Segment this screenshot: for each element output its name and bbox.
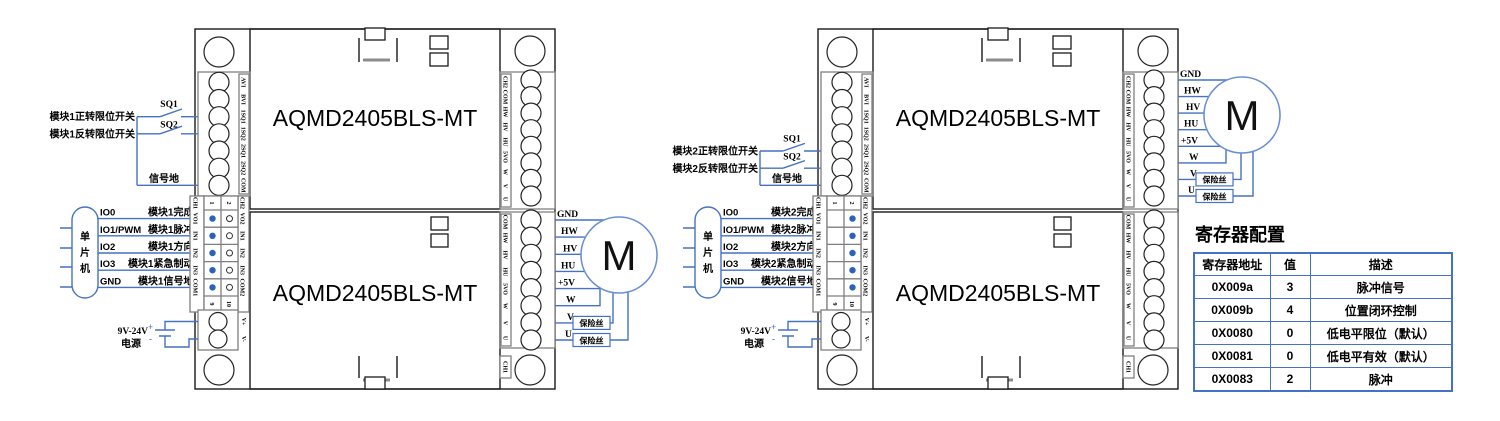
terminal-label: V — [1125, 321, 1131, 326]
reverse-limit-label: 模块1反转限位开关 — [49, 128, 135, 141]
motor-wire-label: V — [567, 313, 574, 323]
header-pin-name: VO2 — [862, 213, 868, 225]
io-signal-label: 模块2方向 — [771, 240, 817, 253]
terminal-label: V — [1125, 184, 1131, 189]
mcu-label-char: 片 — [703, 246, 713, 259]
io-pin-label: IO0 — [100, 208, 115, 219]
terminal-label: W — [502, 303, 508, 309]
battery-minus-sign: - — [149, 334, 152, 344]
sq2-switch-label: SQ2 — [783, 153, 801, 163]
header-pin-label: 10 — [848, 301, 854, 307]
terminal-label: HV — [502, 123, 508, 133]
header-col-label: 2 — [848, 202, 854, 205]
io-pin-label: IO1/PWM — [100, 225, 141, 236]
fuse-label: 保险丝 — [1202, 191, 1227, 201]
terminal-label: HW — [502, 107, 508, 118]
terminal-label: U — [1125, 336, 1131, 341]
battery-minus-sign: - — [772, 334, 775, 344]
io-pin-label: IO2 — [100, 242, 115, 253]
terminal-label: HU — [1125, 138, 1131, 148]
terminal-label: U — [502, 197, 508, 202]
io-pin-label: IO0 — [723, 208, 738, 219]
motor-symbol: M — [1225, 92, 1260, 139]
terminal-label: HU — [1125, 268, 1131, 278]
col-header-value: 值 — [1270, 253, 1310, 276]
header-pin-name: IN3 — [239, 265, 245, 275]
register-table-title: 寄存器配置 — [1195, 221, 1453, 247]
motor-wire-label: +5V — [1181, 136, 1198, 146]
sq1-switch-label: SQ1 — [783, 135, 801, 145]
terminal-label: V+ — [863, 318, 869, 326]
terminal-label: CH1 — [1125, 361, 1131, 373]
table-header-row: 寄存器地址 值 描述 — [1194, 253, 1452, 276]
table-row: 0X0081 0 低电平有效（默认） — [1194, 345, 1452, 368]
terminal-label: V — [502, 184, 508, 189]
io-signal-label: 模块2脉冲 — [771, 223, 817, 236]
header-ch-label: CH1 — [192, 197, 198, 209]
terminal-label: CH2 — [1125, 76, 1131, 88]
terminal-label: HV — [1125, 123, 1131, 133]
terminal-label: 1SQ2 — [863, 127, 869, 141]
terminal-label: 1SQ1 — [240, 110, 246, 124]
terminal-label: W — [1125, 169, 1131, 175]
sq1-switch-label: SQ1 — [160, 100, 178, 110]
motor-wire-label: HU — [1184, 120, 1198, 130]
mcu-label-char: 机 — [703, 262, 713, 275]
terminal-label: U — [502, 336, 508, 341]
io-pin-label: GND — [723, 276, 744, 287]
header-pin-name: COM2 — [239, 279, 245, 297]
motor-wire-label: GND — [557, 210, 578, 220]
terminal-label: COM — [1125, 215, 1131, 230]
motor-wire-label: U — [565, 330, 572, 340]
header-pin-name: IN1 — [192, 231, 198, 241]
sq2-switch-label: SQ2 — [160, 121, 178, 131]
fuse-label: 保险丝 — [1202, 175, 1227, 185]
motor-wire-label: W — [566, 296, 576, 306]
header-pin-name: COM1 — [192, 279, 198, 297]
fuse-label: 保险丝 — [579, 335, 604, 345]
register-table: 寄存器地址 值 描述 0X009a 3 脉冲信号 0X009b 4 位置闭环控制… — [1193, 252, 1453, 392]
header-pin-name: IN2 — [862, 248, 868, 258]
terminal-label: 5VO — [502, 283, 508, 295]
mcu-label-char: 单 — [80, 230, 90, 243]
terminal-label: HV — [502, 251, 508, 261]
header-pin-label: 9 — [208, 303, 214, 306]
terminal-label: 2SQ1 — [240, 144, 246, 158]
header-pin-name: COM2 — [862, 279, 868, 297]
io-signal-label: 模块1脉冲 — [148, 223, 194, 236]
terminal-label: W — [1125, 303, 1131, 309]
table-row: 0X009a 3 脉冲信号 — [1194, 276, 1452, 299]
fuse-label: 保险丝 — [579, 318, 604, 328]
header-pin-name: IN2 — [239, 248, 245, 258]
motor-wire-label: V — [1190, 169, 1197, 179]
terminal-label: 5VO — [1125, 283, 1131, 295]
header-pin-name: IN1 — [862, 231, 868, 241]
header-pin-name: IN1 — [239, 231, 245, 241]
terminal-label: U — [1125, 197, 1131, 202]
terminal-label: 1SQ2 — [240, 127, 246, 141]
header-pin-name: VO2 — [239, 213, 245, 225]
mcu-label-char: 机 — [80, 262, 90, 275]
terminal-label: 2SQ1 — [863, 144, 869, 158]
terminal-label: 5VO — [502, 151, 508, 163]
io-pin-label: IO2 — [723, 242, 738, 253]
terminal-label: 2SQ2 — [240, 161, 246, 175]
wiring-diagram-page: AQMD2405BLS-MT AQMD2405BLS-MT SQ1 SQ2 模块… — [0, 0, 1500, 421]
motor-wire-label: HV — [563, 244, 577, 254]
terminal-label: BVI — [863, 94, 869, 105]
battery-plus-sign: + — [148, 322, 153, 332]
header-pin-name: IN3 — [815, 265, 821, 275]
header-pin-name: IN3 — [192, 265, 198, 275]
terminal-label: V- — [240, 336, 246, 342]
terminal-label: 2SQ2 — [863, 161, 869, 175]
power-supply-voltage: 9V-24V — [741, 327, 772, 337]
terminal-label: HW — [1125, 107, 1131, 118]
motor-wire-label: HV — [1186, 103, 1200, 113]
mcu-label-char: 单 — [703, 230, 713, 243]
terminal-label: BVI — [240, 94, 246, 105]
header-col-label: 2 — [225, 202, 231, 205]
motor-wire-label: +5V — [558, 279, 575, 289]
terminal-label: COM — [240, 178, 246, 193]
header-pin-name: IN2 — [192, 248, 198, 258]
io-signal-label: 模块2完成 — [771, 206, 817, 219]
header-pin-label: 10 — [225, 301, 231, 307]
terminal-label: 1SQ1 — [863, 110, 869, 124]
header-ch-label: CH1 — [815, 197, 821, 209]
terminal-label: COM — [863, 178, 869, 193]
terminal-label: COM — [502, 215, 508, 230]
io-signal-label: 模块1完成 — [148, 206, 194, 219]
motor-symbol: M — [602, 232, 637, 279]
header-col-label: 1 — [208, 202, 214, 205]
terminal-label: HW — [1125, 233, 1131, 244]
terminal-label: V- — [863, 336, 869, 342]
terminal-label: HW — [502, 233, 508, 244]
board-name: AQMD2405BLS-MT — [896, 280, 1101, 306]
motor-wire-label: U — [1188, 186, 1195, 196]
power-supply-label: 电源 — [121, 337, 141, 350]
motor-wire-label: W — [1189, 153, 1199, 163]
reverse-limit-label: 模块2反转限位开关 — [672, 162, 758, 175]
io-signal-label: 模块2紧急制动 — [751, 257, 817, 270]
register-config-panel: 寄存器配置 寄存器地址 值 描述 0X009a 3 脉冲信号 0X009b 4 … — [1193, 221, 1453, 392]
terminal-label: AVI — [863, 77, 869, 88]
terminal-label: HU — [502, 268, 508, 278]
header-ch-label: CH2 — [862, 197, 868, 209]
header-pin-name: VO1 — [192, 213, 198, 225]
terminal-label: 5VO — [1125, 151, 1131, 163]
battery-plus-sign: + — [771, 322, 776, 332]
terminal-label: V — [502, 321, 508, 326]
io-signal-label: 模块2信号地 — [761, 274, 817, 287]
terminal-label: COM — [1125, 90, 1131, 105]
io-signal-label: 模块1紧急制动 — [128, 257, 194, 270]
motor-wire-label: HU — [561, 261, 575, 271]
terminal-label: HV — [1125, 251, 1131, 261]
header-pin-label: 9 — [831, 303, 837, 306]
header-pin-name: COM1 — [815, 279, 821, 297]
terminal-label: AVI — [240, 77, 246, 88]
col-header-address: 寄存器地址 — [1194, 253, 1270, 276]
power-supply-voltage: 9V-24V — [118, 327, 149, 337]
terminal-label: CH1 — [502, 361, 508, 373]
board-name: AQMD2405BLS-MT — [273, 105, 478, 131]
header-ch-label: CH2 — [239, 197, 245, 209]
io-signal-label: 模块1信号地 — [138, 274, 194, 287]
module2-wiring-diagram: AQMD2405BLS-MT AQMD2405BLS-MT SQ1 SQ2 模块… — [672, 28, 1280, 389]
power-supply-label: 电源 — [744, 337, 764, 350]
module1-wiring-diagram: AQMD2405BLS-MT AQMD2405BLS-MT SQ1 SQ2 模块… — [49, 28, 657, 389]
motor-wire-label: HW — [1184, 87, 1201, 97]
mcu-label-char: 片 — [80, 246, 90, 259]
terminal-label: W — [502, 169, 508, 175]
io-pin-label: IO1/PWM — [723, 225, 764, 236]
io-pin-label: IO3 — [723, 259, 738, 270]
board-name: AQMD2405BLS-MT — [273, 280, 478, 306]
terminal-label: CH2 — [502, 76, 508, 88]
signal-ground-label: 信号地 — [149, 172, 179, 185]
table-row: 0X0080 0 低电平限位（默认） — [1194, 322, 1452, 345]
forward-limit-label: 模块1正转限位开关 — [49, 110, 135, 123]
terminal-label: V+ — [240, 318, 246, 326]
module1-power-wiring — [155, 310, 238, 350]
motor-wire-label: GND — [1180, 70, 1201, 80]
terminal-label: HU — [502, 138, 508, 148]
motor-wire-label: HW — [561, 227, 578, 237]
forward-limit-label: 模块2正转限位开关 — [672, 145, 758, 158]
header-col-label: 1 — [831, 202, 837, 205]
io-pin-label: GND — [100, 276, 121, 287]
module2-power-wiring — [778, 310, 861, 350]
header-pin-name: IN3 — [862, 265, 868, 275]
header-pin-name: IN2 — [815, 248, 821, 258]
signal-ground-label: 信号地 — [772, 172, 802, 185]
table-row: 0X0083 2 脉冲 — [1194, 368, 1452, 392]
io-signal-label: 模块1方向 — [148, 240, 194, 253]
board-name: AQMD2405BLS-MT — [896, 105, 1101, 131]
terminal-label: COM — [502, 90, 508, 105]
io-pin-label: IO3 — [100, 259, 115, 270]
table-row: 0X009b 4 位置闭环控制 — [1194, 299, 1452, 322]
header-pin-name: IN1 — [815, 231, 821, 241]
header-pin-name: VO1 — [815, 213, 821, 225]
col-header-description: 描述 — [1310, 253, 1452, 276]
